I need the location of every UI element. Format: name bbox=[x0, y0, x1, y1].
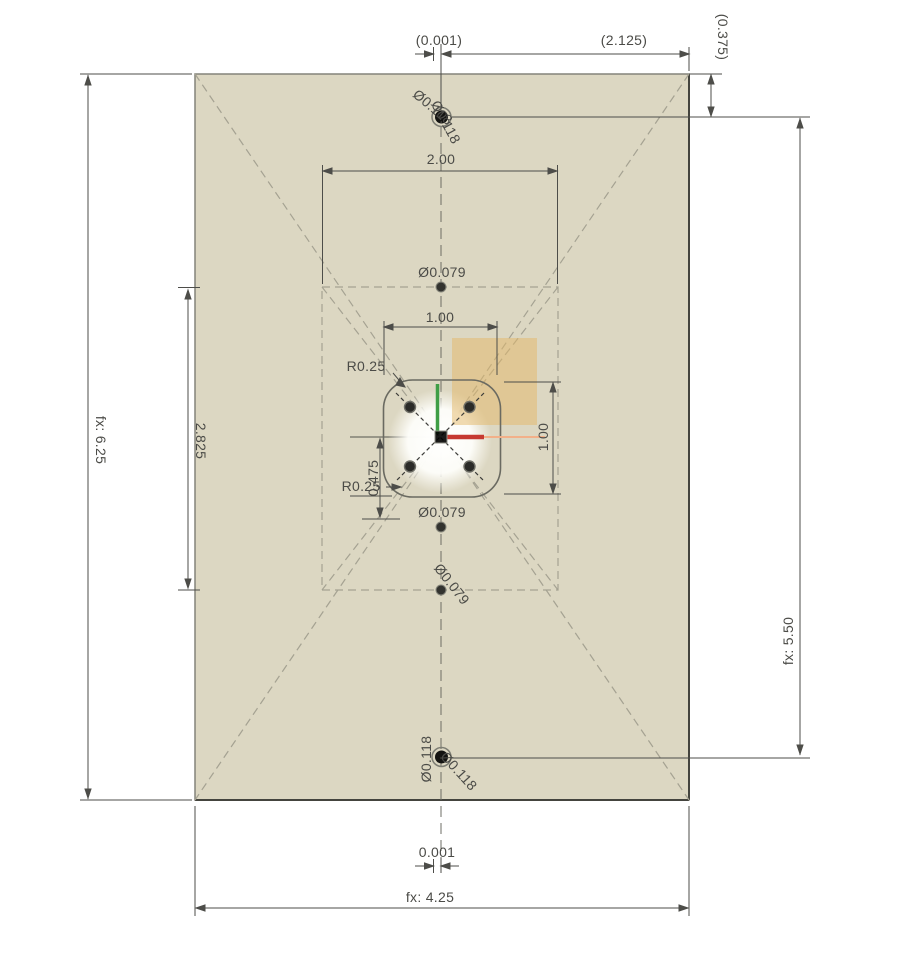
dim-label-corner-radius-top[interactable]: R0.25 bbox=[347, 359, 386, 373]
dim-label-inner-height[interactable]: 2.825 bbox=[194, 423, 208, 460]
dim-label-plate-width[interactable]: fx: 4.25 bbox=[406, 890, 454, 904]
dim-label-square-height[interactable]: 1.00 bbox=[536, 423, 550, 451]
dim-label-hole-span-height[interactable]: fx: 5.50 bbox=[781, 617, 795, 665]
dim-label-top-offset[interactable]: (0.001) bbox=[416, 33, 462, 47]
dim-label-hole-bottom-dia-a[interactable]: Ø0.118 bbox=[419, 736, 433, 783]
hole-small-mid bbox=[436, 522, 446, 532]
sketch-canvas: (0.001) (2.125) (0.375) Ø0.118 Ø0.118 2.… bbox=[0, 0, 914, 963]
hole-small-top bbox=[436, 282, 446, 292]
dim-label-rect-width[interactable]: 2.00 bbox=[427, 152, 455, 166]
hole-inner-br bbox=[464, 461, 475, 472]
hole-inner-bl bbox=[405, 461, 416, 472]
dim-label-plate-height[interactable]: fx: 6.25 bbox=[94, 416, 108, 464]
origin-point bbox=[435, 431, 447, 443]
dim-label-hole-small-mid[interactable]: Ø0.079 bbox=[418, 505, 466, 519]
hole-inner-tr bbox=[464, 402, 475, 413]
dim-label-hole-small-top[interactable]: Ø0.079 bbox=[418, 265, 466, 279]
dim-label-bottom-offset[interactable]: 0.001 bbox=[419, 845, 456, 859]
hole-inner-tl bbox=[405, 402, 416, 413]
sketch-drawing bbox=[0, 0, 914, 963]
dim-label-top-edge-offset[interactable]: (0.375) bbox=[716, 14, 730, 60]
dim-label-top-span[interactable]: (2.125) bbox=[601, 33, 647, 47]
dim-label-square-width[interactable]: 1.00 bbox=[426, 310, 454, 324]
dim-label-center-offset[interactable]: 0.475 bbox=[366, 460, 380, 497]
